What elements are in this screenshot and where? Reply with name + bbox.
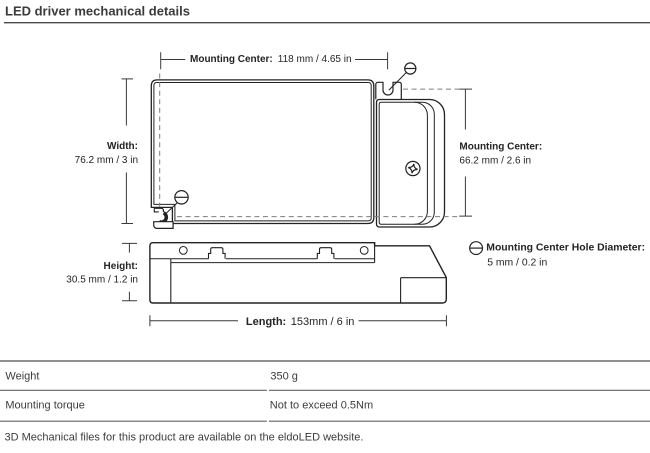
- svg-text:Mounting Center:118 mm / 4.65: Mounting Center:118 mm / 4.65 in: [190, 54, 352, 65]
- svg-text:76.2 mm / 3 in: 76.2 mm / 3 in: [75, 155, 138, 166]
- svg-text:Height:: Height:: [104, 261, 138, 272]
- svg-text:Length:153mm / 6 in: Length:153mm / 6 in: [246, 316, 354, 328]
- svg-text:Width:: Width:: [107, 141, 138, 152]
- svg-text:5 mm / 0.2 in: 5 mm / 0.2 in: [487, 257, 547, 268]
- svg-text:66.2 mm / 2.6 in: 66.2 mm / 2.6 in: [459, 155, 531, 166]
- svg-text:Weight: Weight: [5, 370, 39, 382]
- svg-text:30.5 mm / 1.2 in: 30.5 mm / 1.2 in: [66, 275, 138, 286]
- svg-text:Not to exceed 0.5Nm: Not to exceed 0.5Nm: [270, 400, 373, 412]
- svg-text:350 g: 350 g: [270, 370, 298, 382]
- svg-text:Mounting Center Hole Diameter:: Mounting Center Hole Diameter:: [486, 243, 645, 254]
- svg-text:LED driver mechanical details: LED driver mechanical details: [5, 4, 190, 19]
- svg-text:3D Mechanical files for this p: 3D Mechanical files for this product are…: [5, 432, 364, 444]
- svg-text:Mounting torque: Mounting torque: [5, 400, 85, 412]
- svg-text:Mounting Center:: Mounting Center:: [459, 142, 542, 153]
